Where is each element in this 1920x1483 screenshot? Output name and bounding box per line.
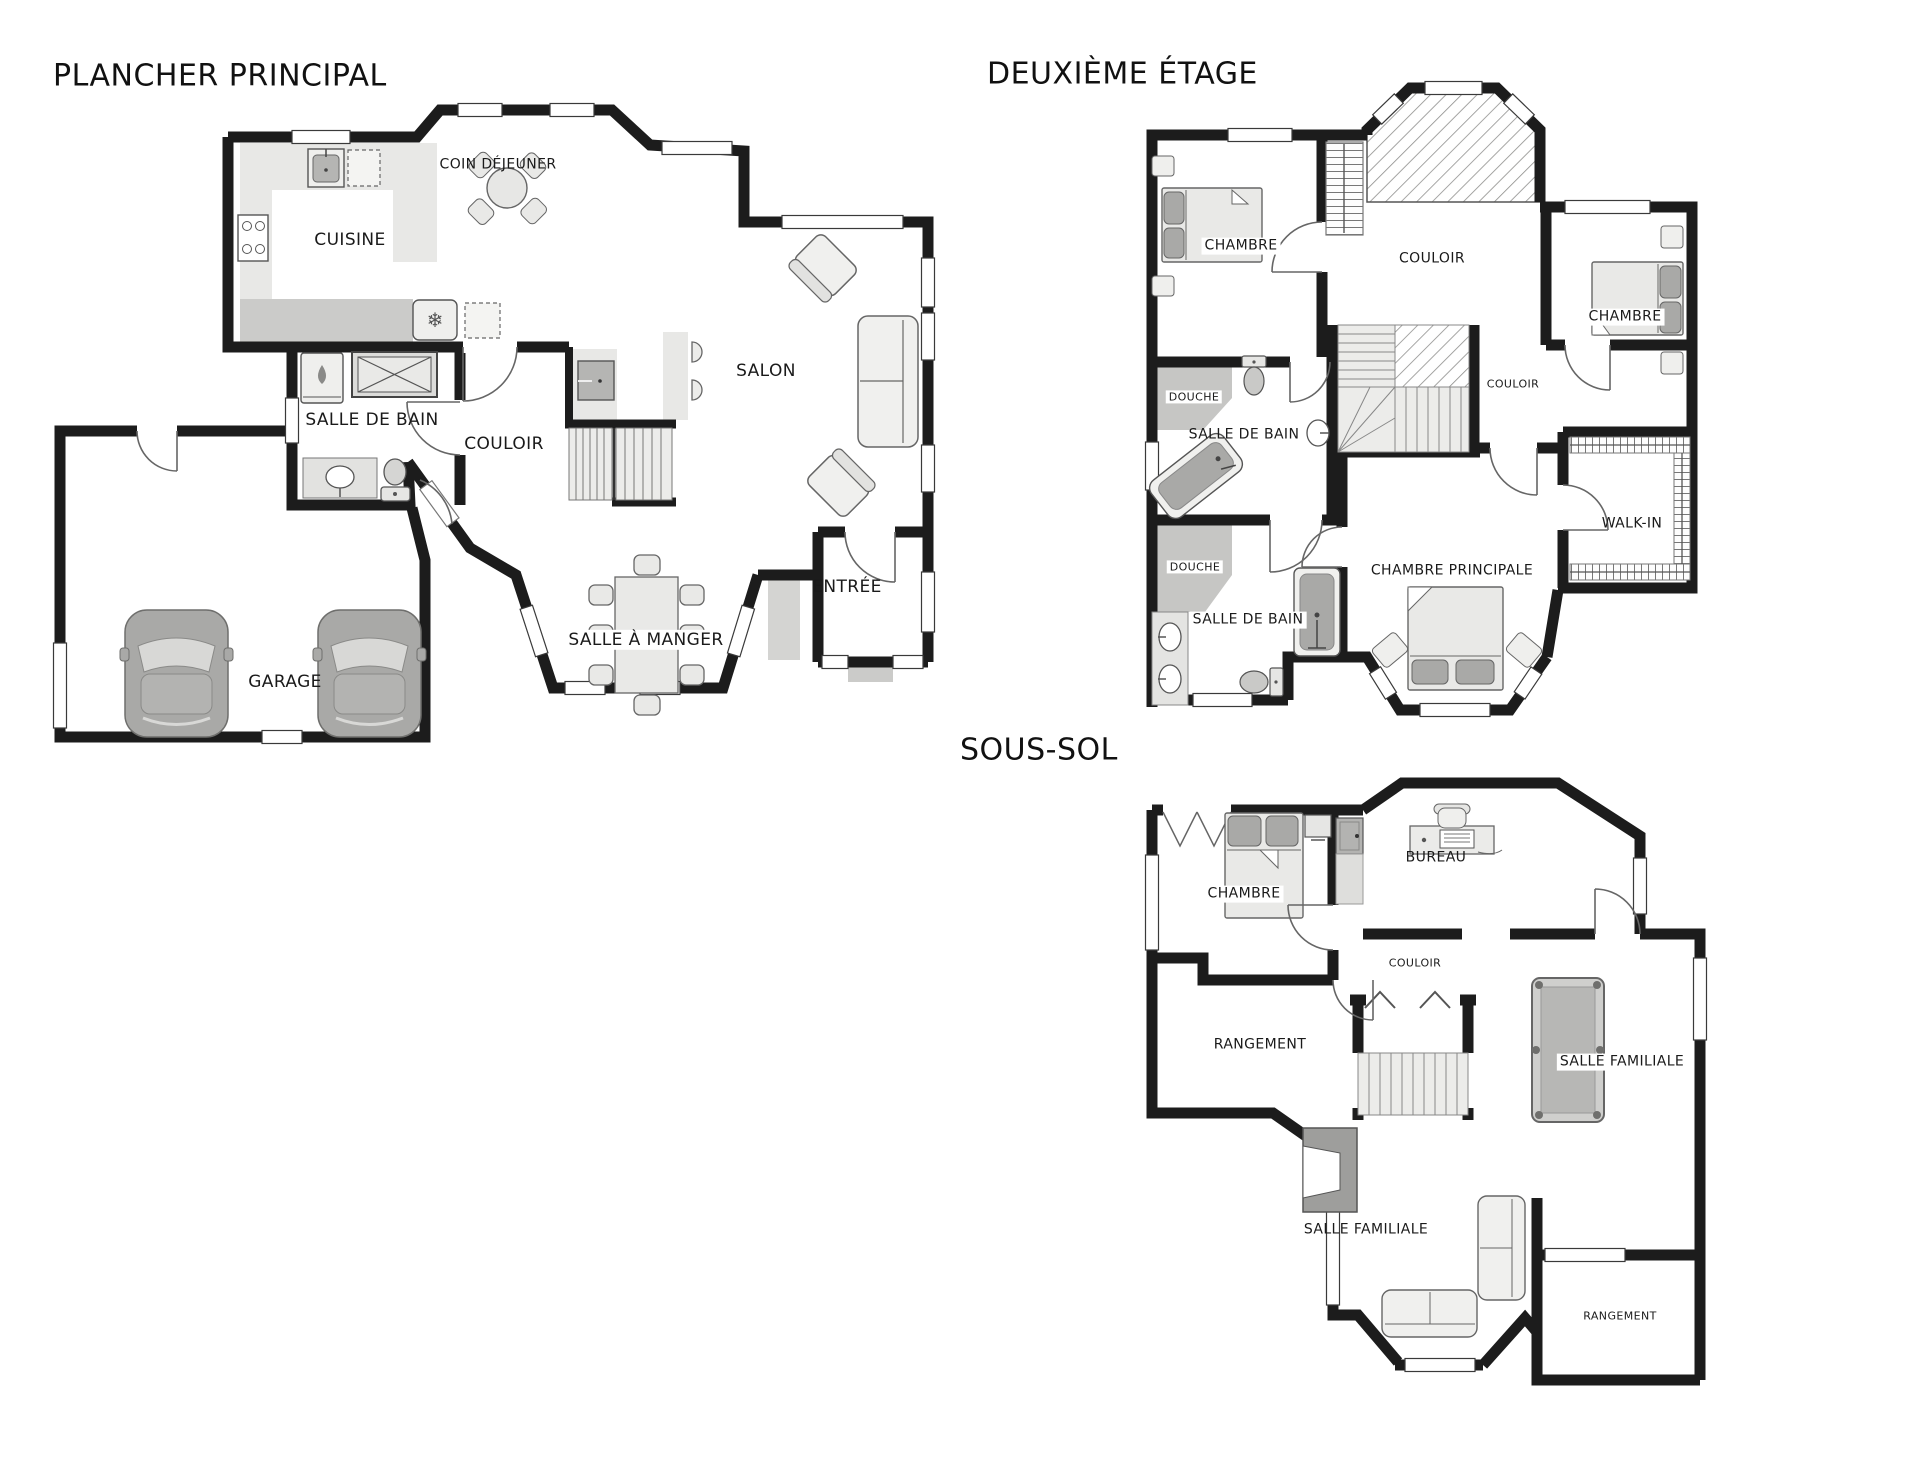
toilet-icon [1240,668,1283,696]
room-label-salle-a-manger: SALLE À MANGER [565,630,726,650]
room-label-salon: SALON [736,361,796,381]
appliance-icon [465,303,500,338]
room-label-salle-de-bain-1: SALLE DE BAIN [1189,427,1300,444]
main-floor-title: PLANCHER PRINCIPAL [53,59,387,94]
pedestal-sink-icon [1307,420,1329,446]
floor-plan-page: ❄ [0,0,1920,1483]
room-label-entree: ENTRÉE [812,577,882,597]
room-label-douche-1: DOUCHE [1166,390,1222,403]
armchair-icon [805,447,877,519]
bed-icon [1371,587,1543,690]
second-floor-title: DEUXIÈME ÉTAGE [987,57,1258,92]
cold-room [1303,1128,1357,1212]
room-label-cuisine: CUISINE [314,230,385,250]
svg-text:❄: ❄ [427,308,444,332]
walkin-racks [1570,437,1690,580]
desk-icon [1410,804,1502,854]
garage-car-icon [120,610,233,737]
sink-cabinet-icon [1336,818,1363,904]
stairs-main [569,428,672,500]
sofa-icon [858,316,918,447]
room-label-chambre-2: CHAMBRE [1586,309,1665,326]
entry-step [768,576,800,660]
kitchen-sink-icon [308,149,344,187]
front-door-step [848,666,893,682]
room-label-couloir: COULOIR [464,434,544,454]
room-label-chambre-1: CHAMBRE [1202,238,1281,255]
room-label-chambre-principale: CHAMBRE PRINCIPALE [1371,563,1533,580]
room-label-walk-in: WALK-IN [1602,516,1663,533]
bed-icon [1152,156,1262,296]
basement-plan [1146,783,1707,1380]
main-floor-doors [137,347,895,582]
room-label-rangement-2: RANGEMENT [1583,1309,1656,1322]
room-label-salle-familiale-2: SALLE FAMILIALE [1304,1222,1428,1239]
closet-rack [1326,142,1363,235]
sofa-icon [1382,1290,1477,1337]
room-label-couloir-small: COULOIR [1487,377,1539,390]
bed-icon [1592,226,1683,374]
room-label-salle-de-bain-2: SALLE DE BAIN [1190,612,1307,629]
toilet-icon [1242,356,1266,395]
tv-icon [1305,815,1331,840]
main-floor-plan: ❄ [54,104,935,744]
double-vanity [1152,612,1188,705]
room-label-chambre-ss: CHAMBRE [1205,886,1284,903]
room-label-couloir-2e: COULOIR [1399,251,1465,268]
pool-table-icon [1532,978,1604,1122]
sofa-icon [1478,1196,1525,1300]
stove-icon [238,215,268,261]
room-label-salle-de-bain: SALLE DE BAIN [305,410,438,430]
stairs-second [1338,325,1469,452]
bar-sink-icon [578,361,614,400]
room-label-bureau: BUREAU [1406,850,1467,867]
fridge-icon: ❄ [413,300,457,340]
basement-title: SOUS-SOL [960,733,1118,768]
room-label-garage: GARAGE [248,672,322,692]
vanity-sink-icon [303,458,377,498]
room-label-couloir-ss: COULOIR [1389,956,1441,969]
room-label-salle-familiale-1: SALLE FAMILIALE [1557,1054,1687,1071]
bifold-closet-doors [1163,812,1231,846]
room-label-douche-2: DOUCHE [1167,560,1223,573]
armchair-icon [787,232,859,304]
room-label-coin-dejeuner: COIN DÉJEUNER [440,157,557,174]
bar-stool-icon [692,342,702,400]
room-label-rangement-1: RANGEMENT [1214,1037,1306,1054]
stairs-basement [1358,992,1468,1115]
bath-cabinet-icon [301,353,343,403]
dishwasher-icon [348,150,380,186]
bathtub-icon [1146,430,1247,523]
shower-icon [352,352,437,397]
garage-car-icon [313,610,426,737]
